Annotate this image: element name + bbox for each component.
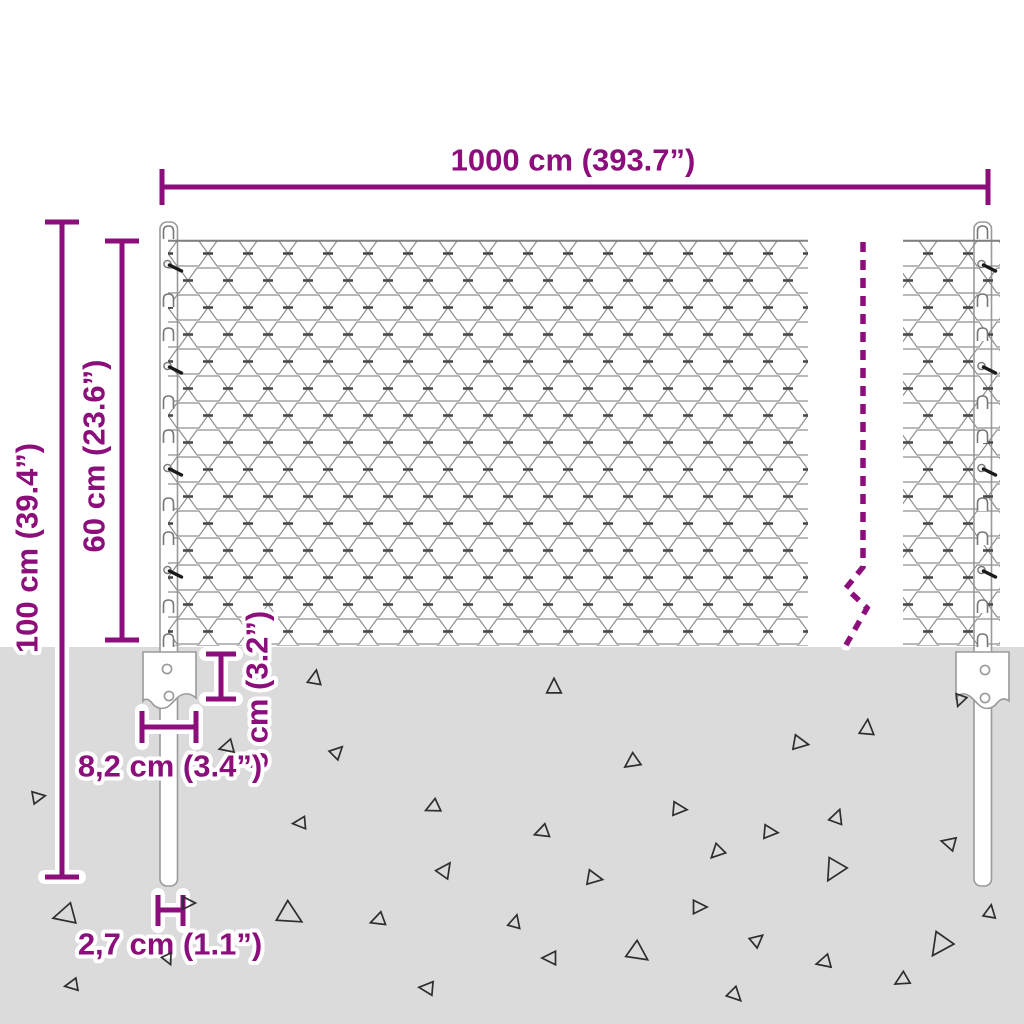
label-total-width: 1000 cm (393.7”) bbox=[451, 143, 696, 178]
post-hook bbox=[164, 396, 174, 409]
label-anchor-depth: 8 cm (3.2”) bbox=[240, 611, 275, 770]
post-hook bbox=[164, 532, 174, 545]
post-hook bbox=[164, 226, 174, 239]
post-hook bbox=[164, 634, 174, 647]
post-hook bbox=[978, 532, 988, 545]
fence-dimension-diagram: 1000 cm (393.7”) 100 cm (39.4”) 60 cm (2… bbox=[0, 0, 1024, 1024]
post-hook bbox=[978, 328, 988, 341]
post-hook bbox=[164, 600, 174, 613]
post-hook bbox=[978, 600, 988, 613]
post-hook bbox=[164, 328, 174, 341]
post-hook bbox=[978, 498, 988, 511]
post-hook bbox=[978, 294, 988, 307]
post-hook bbox=[978, 226, 988, 239]
post-hook bbox=[978, 396, 988, 409]
post-hook bbox=[164, 498, 174, 511]
break-line bbox=[846, 242, 867, 645]
post-hook bbox=[978, 634, 988, 647]
mesh-panel-main bbox=[168, 240, 808, 646]
post-hook bbox=[164, 294, 174, 307]
label-anchor-width: 8,2 cm (3.4”) bbox=[78, 749, 262, 784]
label-mesh-height: 60 cm (23.6”) bbox=[77, 360, 112, 553]
post-hook bbox=[164, 430, 174, 443]
post-hook bbox=[978, 430, 988, 443]
label-post-height: 100 cm (39.4”) bbox=[10, 443, 45, 653]
diagram-canvas: 1000 cm (393.7”) 100 cm (39.4”) 60 cm (2… bbox=[0, 0, 1024, 1024]
